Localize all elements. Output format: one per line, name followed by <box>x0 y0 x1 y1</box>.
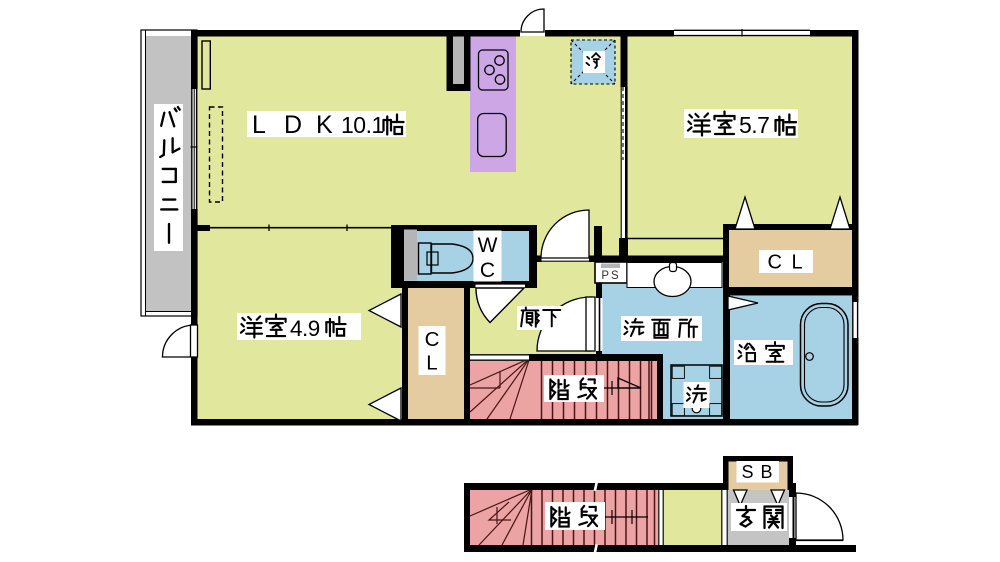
svg-text:C L: C L <box>767 252 804 274</box>
svg-text:C: C <box>425 328 440 351</box>
svg-text:L: L <box>426 352 437 375</box>
svg-text:S B: S B <box>741 462 773 482</box>
svg-text:L: L <box>252 111 266 139</box>
svg-text:5.7: 5.7 <box>739 112 769 138</box>
svg-text:K: K <box>316 111 333 139</box>
svg-text:PS: PS <box>601 270 620 282</box>
svg-text:C: C <box>480 259 495 282</box>
svg-text:W: W <box>478 234 498 257</box>
svg-text:D: D <box>284 111 302 139</box>
svg-text:4.9: 4.9 <box>290 316 320 341</box>
svg-text:10.1: 10.1 <box>341 112 384 138</box>
